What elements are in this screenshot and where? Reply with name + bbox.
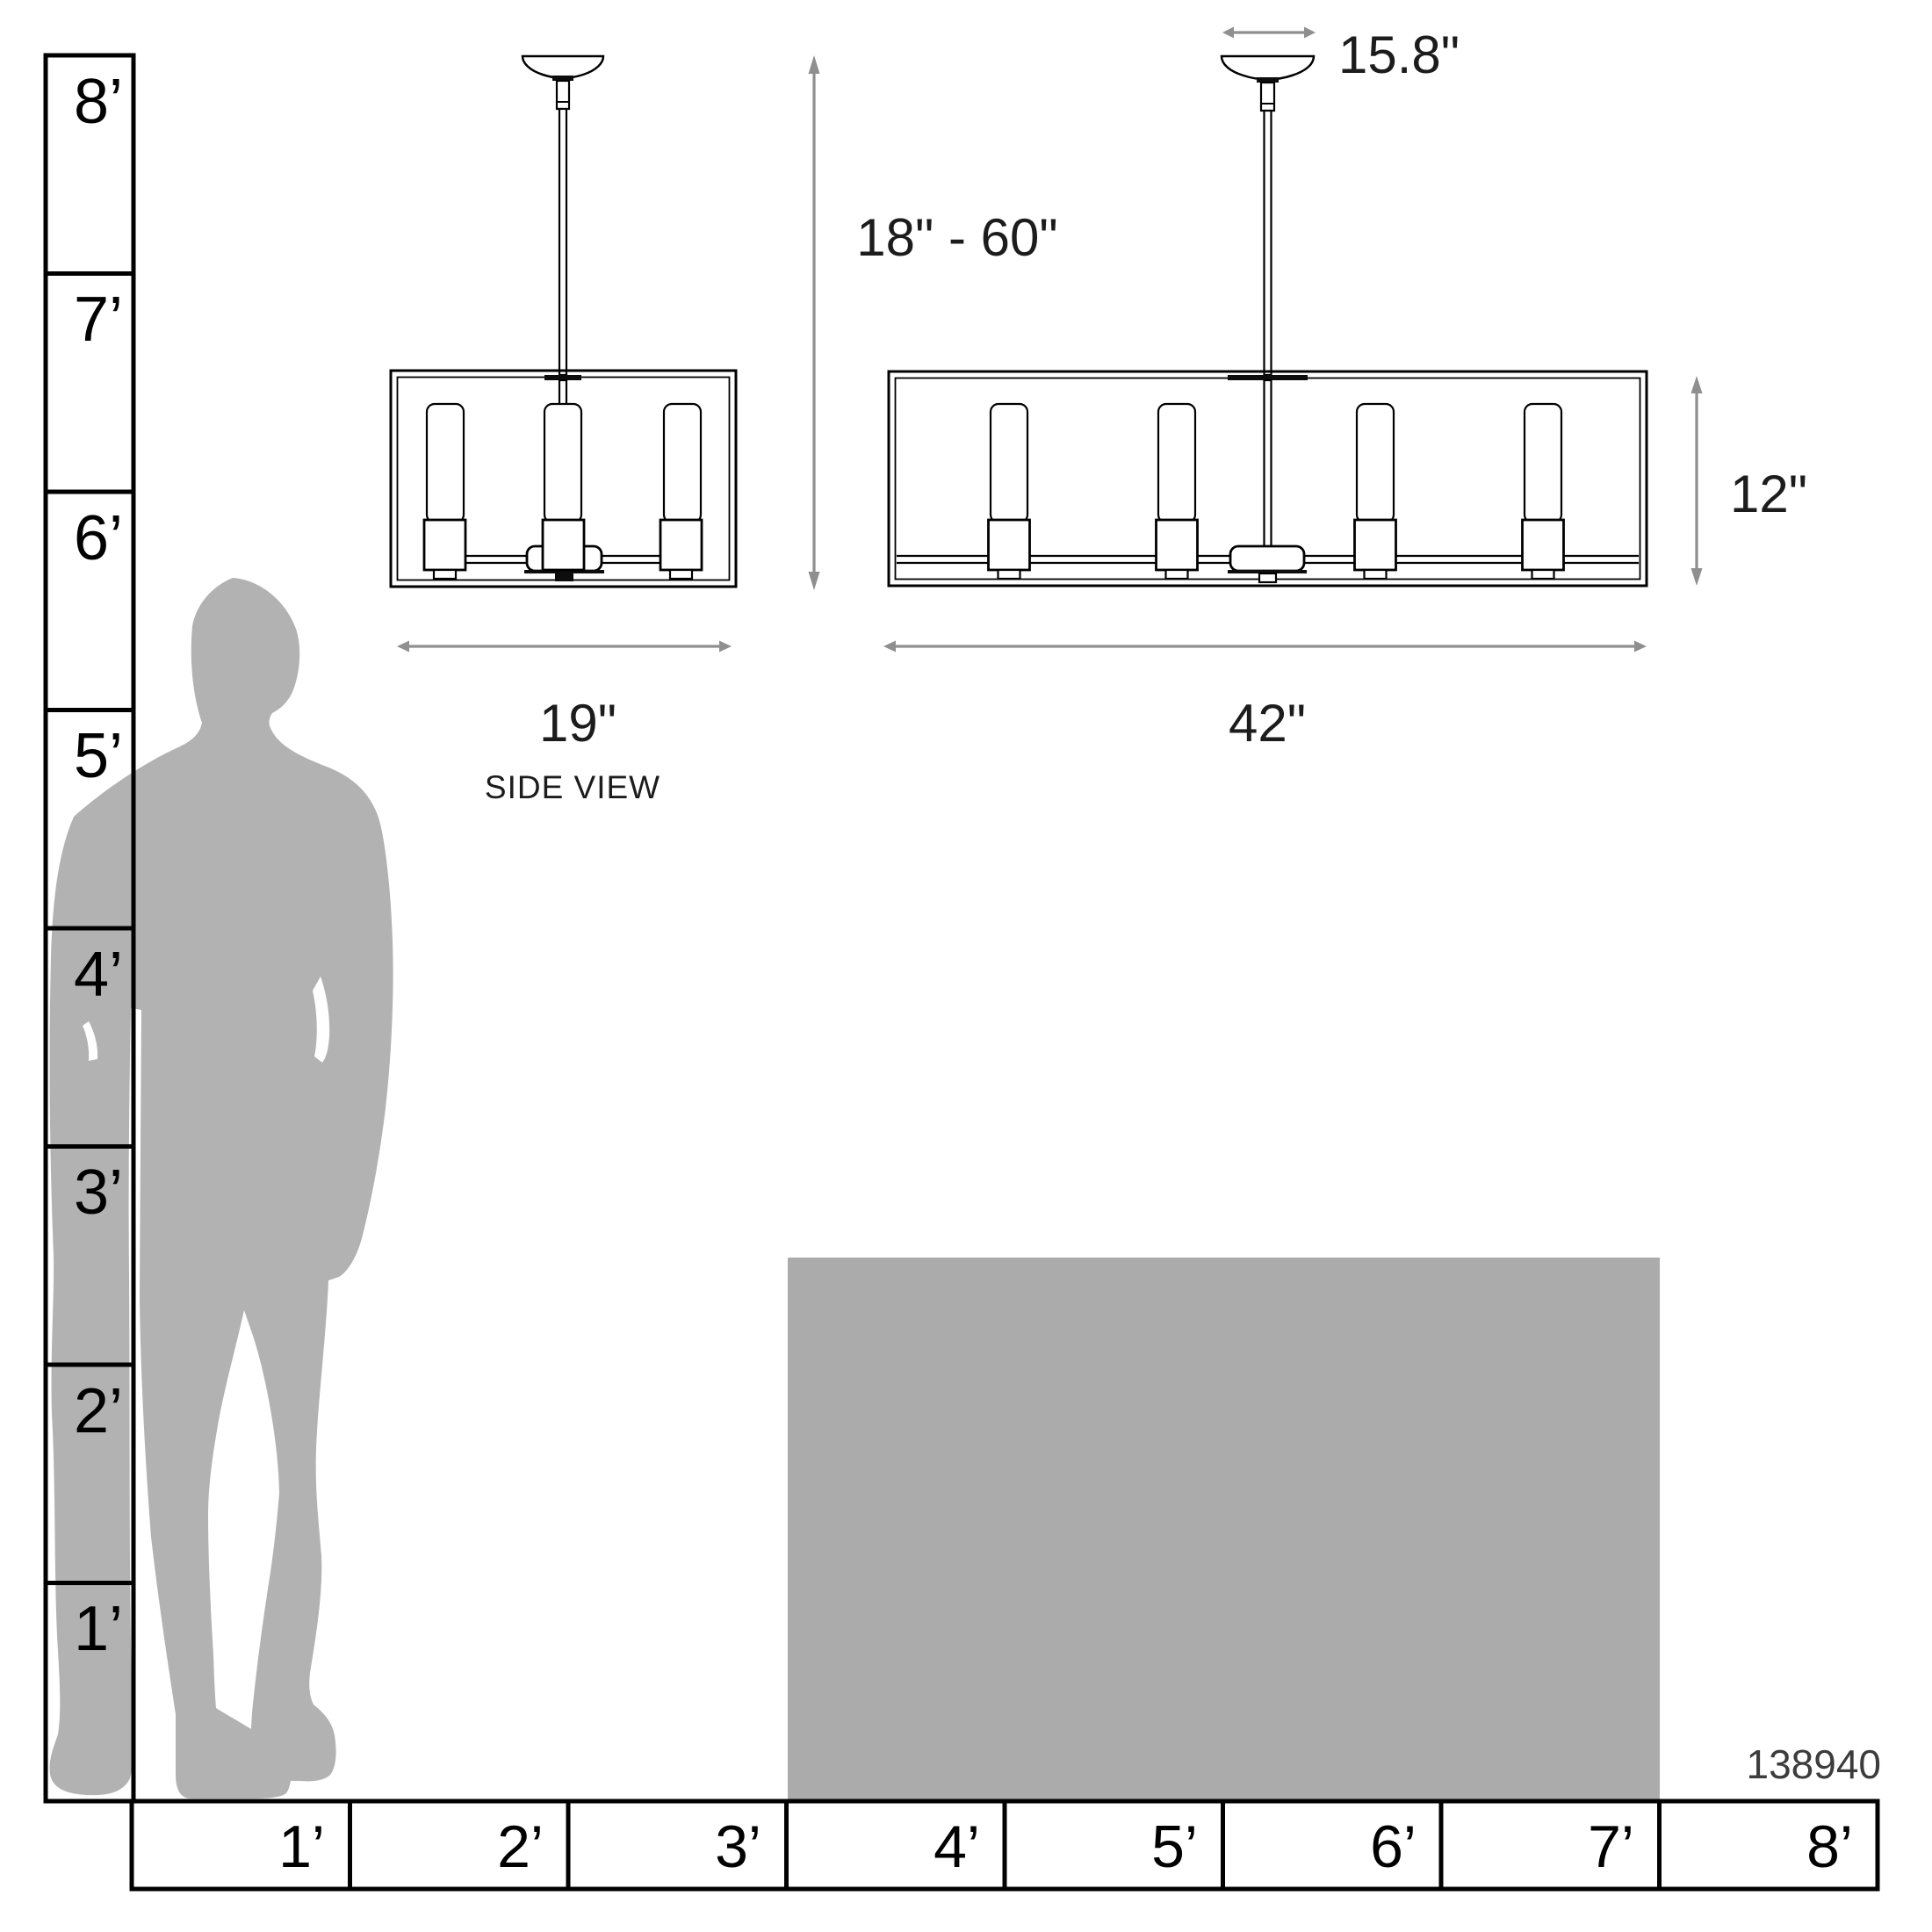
fixture-width-label: 42" bbox=[1229, 697, 1306, 750]
model-number: 138940 bbox=[1747, 1744, 1882, 1784]
fixture-depth-label: 19" bbox=[539, 697, 616, 750]
table-block bbox=[788, 1258, 1660, 1801]
canopy-width-label: 15.8" bbox=[1338, 29, 1460, 82]
side-width-arrow-icon bbox=[397, 641, 732, 652]
hanging-height-label: 18" - 60" bbox=[856, 212, 1057, 264]
horizontal-ruler-label-4ft: 4’ bbox=[934, 1817, 980, 1877]
horizontal-ruler-label-2ft: 2’ bbox=[497, 1817, 544, 1877]
horizontal-ruler-label-1ft: 1’ bbox=[278, 1817, 325, 1877]
vertical-ruler-label-5ft: 5’ bbox=[74, 724, 123, 788]
front-view-drawing bbox=[889, 56, 1647, 586]
vertical-ruler-label-8ft: 8’ bbox=[74, 70, 123, 133]
vertical-ruler-label-2ft: 2’ bbox=[74, 1380, 123, 1443]
vertical-ruler-label-1ft: 1’ bbox=[74, 1597, 123, 1661]
side-view-caption: SIDE VIEW bbox=[485, 771, 660, 804]
height-range-arrow-icon bbox=[809, 55, 820, 590]
fixture-height-arrow-icon bbox=[1691, 376, 1703, 586]
horizontal-ruler-label-5ft: 5’ bbox=[1151, 1817, 1198, 1877]
vertical-ruler-label-7ft: 7’ bbox=[74, 288, 123, 351]
horizontal-ruler-label-8ft: 8’ bbox=[1806, 1817, 1853, 1877]
canopy-width-arrow-icon bbox=[1222, 27, 1316, 39]
horizontal-ruler-label-3ft: 3’ bbox=[715, 1817, 761, 1877]
fixture-height-label: 12" bbox=[1730, 468, 1807, 521]
dimension-diagram: 15.8" 18" - 60" 12" 19" 42" SIDE VIEW 13… bbox=[0, 0, 1932, 1932]
horizontal-ruler-label-7ft: 7’ bbox=[1588, 1817, 1634, 1877]
horizontal-ruler-label-6ft: 6’ bbox=[1370, 1817, 1417, 1877]
vertical-ruler-label-6ft: 6’ bbox=[74, 507, 123, 570]
front-width-arrow-icon bbox=[883, 641, 1647, 652]
diagram-artwork bbox=[0, 0, 1932, 1932]
vertical-ruler-label-4ft: 4’ bbox=[74, 943, 123, 1006]
vertical-ruler-label-3ft: 3’ bbox=[74, 1161, 123, 1224]
side-view-drawing bbox=[391, 56, 736, 587]
